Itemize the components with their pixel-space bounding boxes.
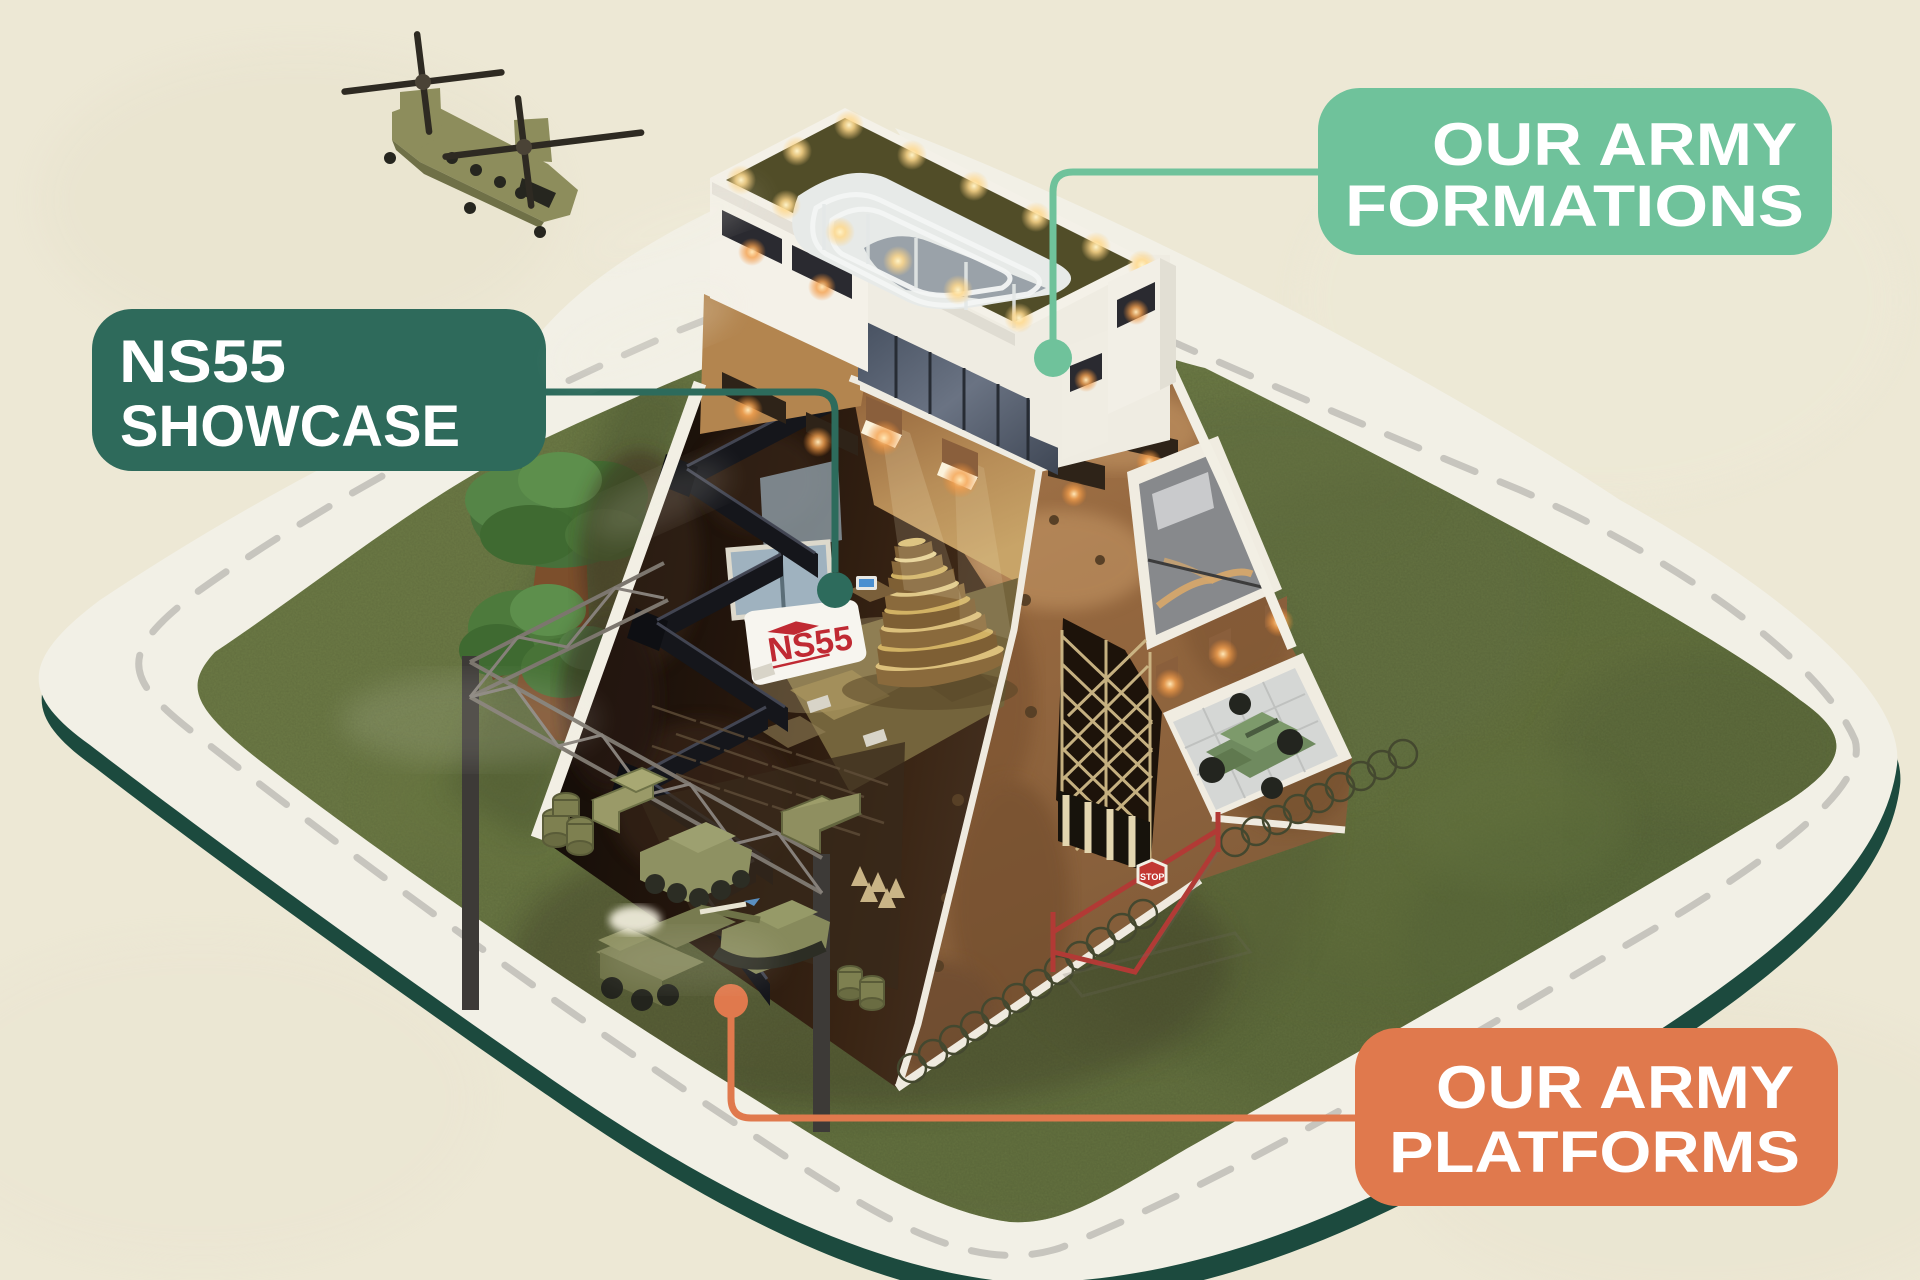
svg-text:FORMATIONS: FORMATIONS	[1345, 174, 1804, 239]
svg-text:OUR ARMY: OUR ARMY	[1432, 111, 1797, 178]
svg-text:NS55: NS55	[119, 328, 286, 395]
svg-text:PLATFORMS: PLATFORMS	[1389, 1120, 1800, 1185]
svg-text:OUR ARMY: OUR ARMY	[1436, 1054, 1794, 1121]
svg-text:STOP: STOP	[1140, 872, 1164, 882]
svg-text:SHOWCASE: SHOWCASE	[120, 394, 460, 459]
